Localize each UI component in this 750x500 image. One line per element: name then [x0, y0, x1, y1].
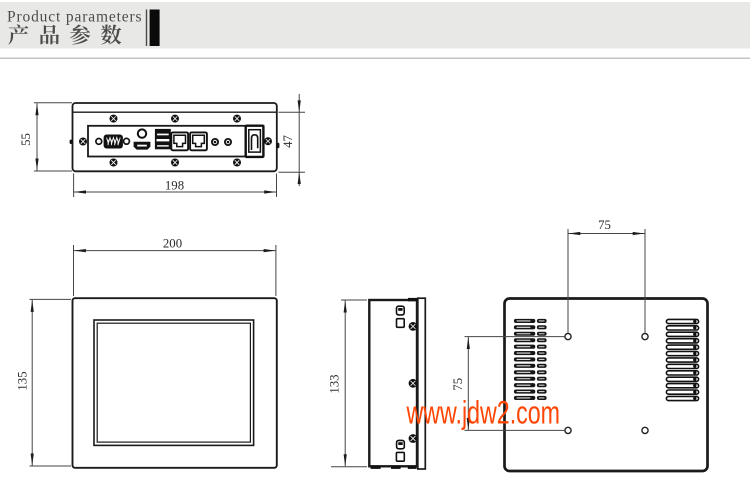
svg-text:135: 135 [15, 371, 29, 390]
svg-text:133: 133 [328, 374, 342, 393]
svg-text:55: 55 [19, 133, 33, 146]
svg-text:Product parameters: Product parameters [7, 8, 142, 25]
svg-text:75: 75 [451, 378, 465, 391]
svg-text:200: 200 [163, 237, 182, 251]
svg-text:47: 47 [281, 135, 295, 148]
svg-text:75: 75 [598, 218, 611, 232]
svg-text:198: 198 [165, 179, 184, 193]
svg-text:www.jdw2.com: www.jdw2.com [406, 395, 560, 431]
